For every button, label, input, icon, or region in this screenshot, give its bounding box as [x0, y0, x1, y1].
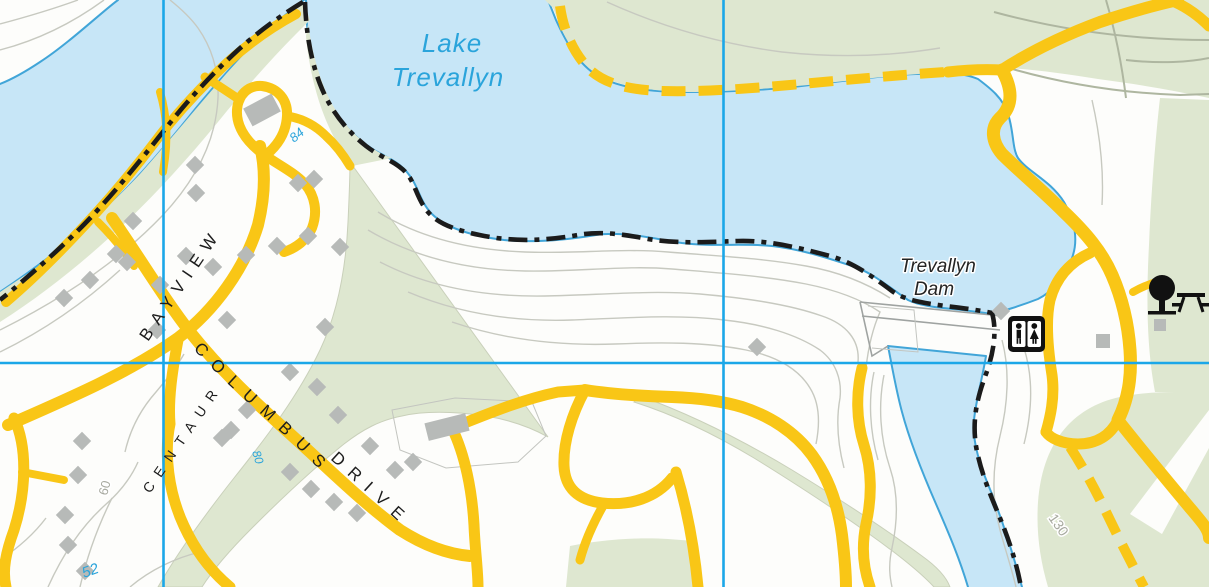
lake-name-line1: Lake [422, 28, 482, 58]
dam-name-line1: Trevallyn [900, 256, 976, 277]
topographic-map: 60 130 [0, 0, 1209, 587]
lake-name-line2: Trevallyn [392, 62, 505, 92]
east-green-strip [1147, 98, 1209, 392]
dam-name-line2: Dam [914, 279, 954, 300]
map-canvas: 60 130 [0, 0, 1209, 587]
toilets-icon [1008, 316, 1045, 352]
